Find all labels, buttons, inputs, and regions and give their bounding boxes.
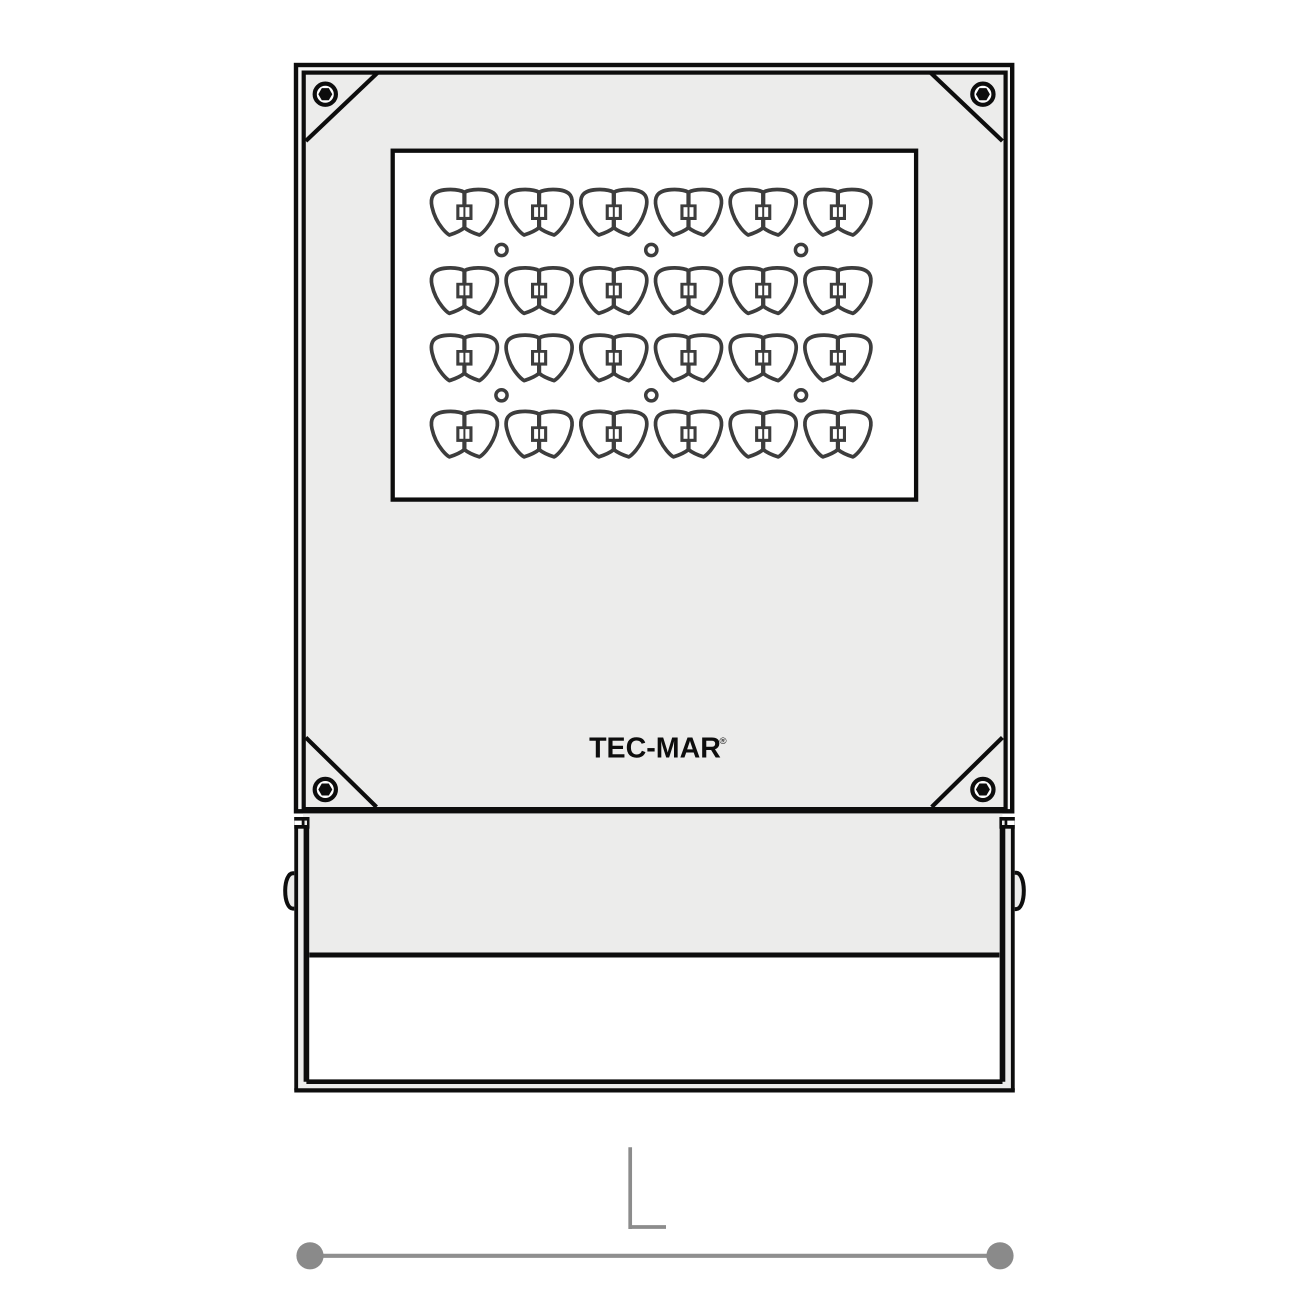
svg-text:TEC-MAR: TEC-MAR — [589, 732, 721, 764]
svg-text:®: ® — [720, 736, 727, 747]
